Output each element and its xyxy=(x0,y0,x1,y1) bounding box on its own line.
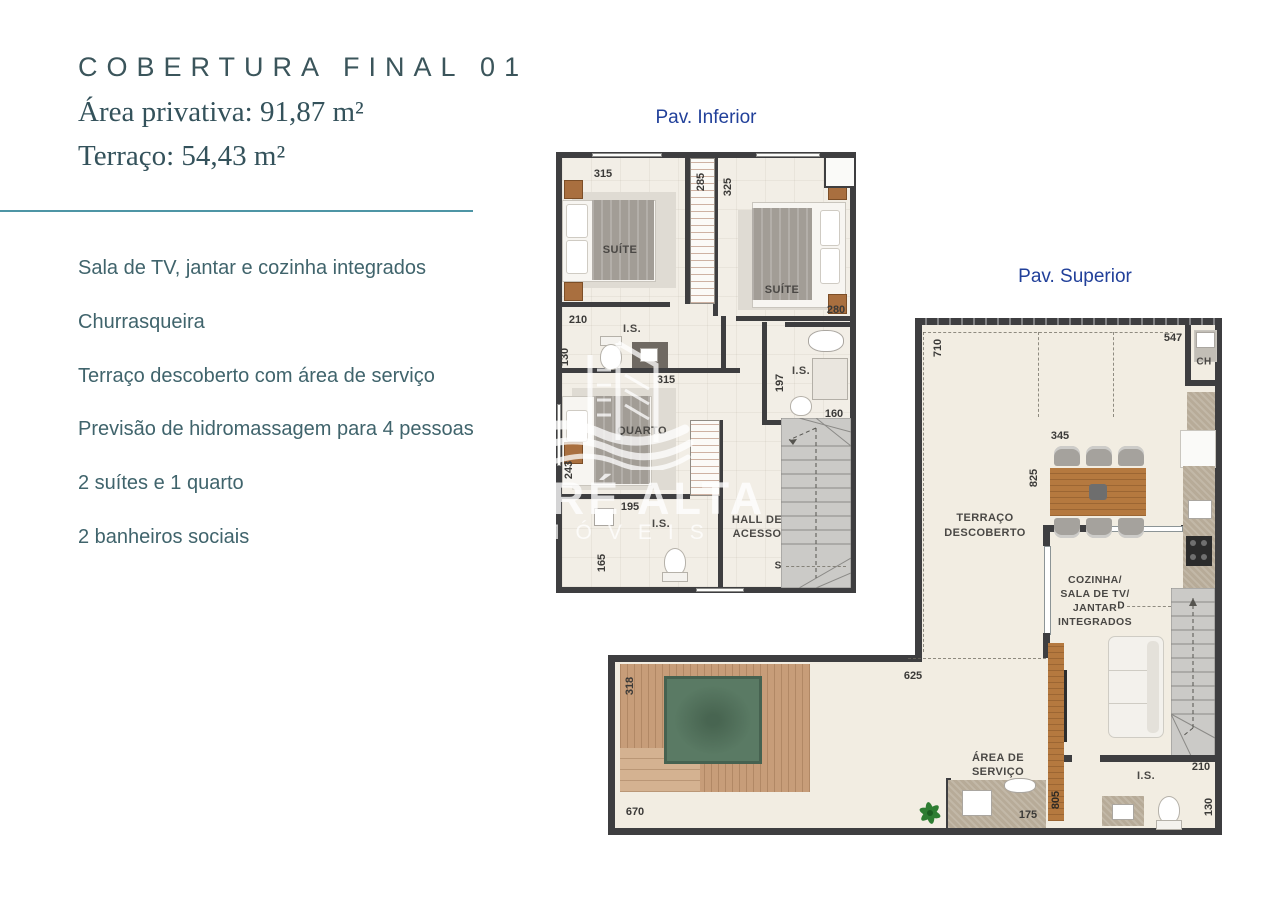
window xyxy=(756,153,820,157)
hot-tub-icon xyxy=(664,676,762,764)
stair-direction-marker: D xyxy=(1117,601,1124,612)
pillow xyxy=(566,204,588,238)
plant-icon xyxy=(918,801,942,825)
sofa-seam xyxy=(1109,703,1147,704)
projection-dash xyxy=(1038,332,1039,417)
pillow xyxy=(820,210,840,246)
plan-label-inferior: Pav. Inferior xyxy=(556,107,856,129)
feature-item: 2 banheiros sociais xyxy=(78,526,249,549)
dim-label: 710 xyxy=(932,339,944,357)
nightstand-icon xyxy=(564,282,583,301)
dim-label: 345 xyxy=(1051,430,1069,442)
sofa-icon xyxy=(1108,636,1164,738)
open-boundary-dash xyxy=(908,658,1046,659)
dim-label: 625 xyxy=(904,670,922,682)
dim-label: 285 xyxy=(695,173,707,191)
plan-label-superior: Pav. Superior xyxy=(945,266,1205,288)
projection-dash xyxy=(1113,332,1114,417)
terrace-area-line: Terraço: 54,43 m² xyxy=(78,140,285,173)
stove-icon xyxy=(1186,536,1212,566)
chair-icon xyxy=(1054,446,1080,466)
wall xyxy=(562,302,670,307)
dim-label: 130 xyxy=(559,348,571,366)
floorplan-sheet: COBERTURA FINAL 01 Área privativa: 91,87… xyxy=(0,0,1273,900)
room-label-area-servico: SERVIÇO xyxy=(972,766,1024,778)
fridge-icon xyxy=(1180,430,1216,468)
feature-item: Previsão de hidromassagem para 4 pessoas xyxy=(78,418,474,441)
dim-label: 325 xyxy=(722,178,734,196)
room-label-ch: CH xyxy=(1196,357,1211,368)
sink-icon xyxy=(1188,500,1212,519)
chair-icon xyxy=(1086,518,1112,538)
feature-item: Terraço descoberto com área de serviço xyxy=(78,365,435,388)
room-label-cozinha: JANTAR xyxy=(1073,602,1117,614)
dim-label: 670 xyxy=(626,806,644,818)
dim-label: 243 xyxy=(563,461,575,479)
dim-label: 318 xyxy=(624,677,636,695)
dim-label: 175 xyxy=(1019,809,1037,821)
sofa-seam xyxy=(1109,670,1147,671)
wall xyxy=(608,655,922,662)
stair-dash xyxy=(1127,606,1171,607)
sink-icon xyxy=(1112,804,1134,820)
private-area-line: Área privativa: 91,87 m² xyxy=(78,96,364,129)
room-label-cozinha: INTEGRADOS xyxy=(1058,616,1132,628)
dim-label: 165 xyxy=(596,554,608,572)
dim-label: 805 xyxy=(1050,791,1062,809)
wall xyxy=(915,318,1222,325)
pillow xyxy=(566,240,588,274)
feature-item: Churrasqueira xyxy=(78,311,205,334)
table-decor xyxy=(1089,484,1107,500)
room-label-area-servico: ÁREA DE xyxy=(972,752,1024,764)
shaft-box xyxy=(824,156,856,188)
dim-label: 130 xyxy=(1203,798,1215,816)
dim-label: 210 xyxy=(1192,761,1210,773)
room-label-suite2: SUÍTE xyxy=(765,284,799,296)
room-label-cozinha: SALA DE TV/ xyxy=(1060,588,1129,600)
projection-dash xyxy=(923,332,924,652)
projection-dash xyxy=(923,332,1173,333)
teal-divider xyxy=(0,210,473,212)
tv-icon xyxy=(1064,670,1067,742)
tank-sink-icon xyxy=(1004,778,1036,793)
wall xyxy=(1043,525,1050,546)
sofa-back xyxy=(1147,641,1159,733)
blanket xyxy=(592,200,654,280)
stairs-icon xyxy=(1171,588,1215,760)
plan-superior: D TERRAÇO DESCOBERTO COZINHA/ xyxy=(608,318,1222,835)
dim-label: 315 xyxy=(594,168,612,180)
washer-icon xyxy=(962,790,992,816)
chair-icon xyxy=(1118,446,1144,466)
dim-label: 210 xyxy=(569,314,587,326)
wall xyxy=(1185,380,1222,386)
wall xyxy=(608,655,615,835)
room-label-is: I.S. xyxy=(1137,770,1155,782)
toilet-icon xyxy=(1156,820,1182,830)
room-label-cozinha: COZINHA/ xyxy=(1068,574,1122,586)
dim-label: 280 xyxy=(827,304,845,316)
wall xyxy=(1064,755,1072,762)
room-label-terraco: TERRAÇO xyxy=(956,512,1013,524)
chair-icon xyxy=(1086,446,1112,466)
grill-box xyxy=(1196,332,1215,348)
feature-item: Sala de TV, jantar e cozinha integrados xyxy=(78,257,426,280)
dim-label: 547 xyxy=(1164,332,1182,344)
dim-label: 825 xyxy=(1028,469,1040,487)
chair-icon xyxy=(1118,518,1144,538)
room-label-suite1: SUÍTE xyxy=(603,244,637,256)
wall xyxy=(1185,325,1191,386)
pillow xyxy=(566,410,588,442)
wall xyxy=(915,318,922,662)
balcony-door xyxy=(557,404,561,466)
pillow xyxy=(820,248,840,284)
counter-icon xyxy=(1187,392,1215,430)
page-title: COBERTURA FINAL 01 xyxy=(78,52,528,83)
glass-door xyxy=(1044,546,1051,635)
wall xyxy=(608,828,1222,835)
window xyxy=(592,153,662,157)
feature-item: 2 suítes e 1 quarto xyxy=(78,472,244,495)
nightstand-icon xyxy=(564,180,583,199)
chair-icon xyxy=(1054,518,1080,538)
room-label-terraco: DESCOBERTO xyxy=(944,527,1025,539)
